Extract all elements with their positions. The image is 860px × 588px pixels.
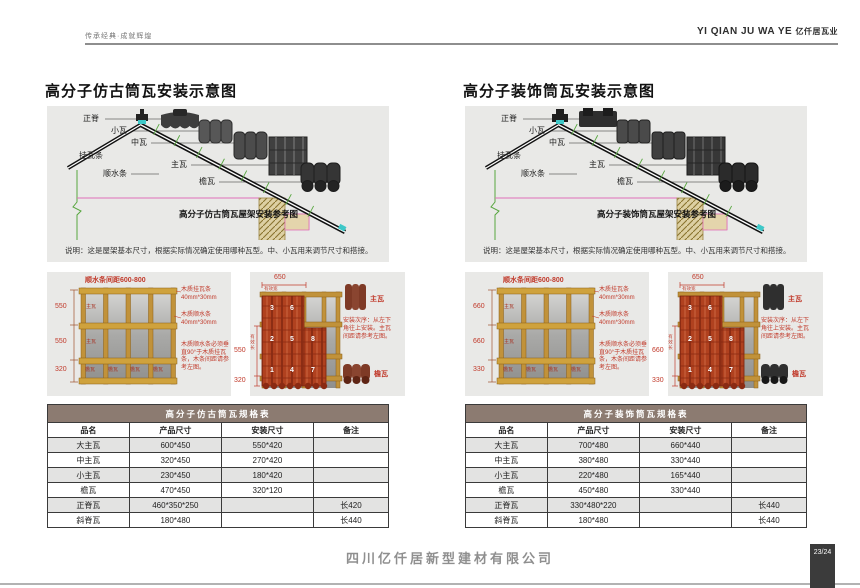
table-cell: 檐瓦: [466, 483, 548, 498]
table-row: 檐瓦450*480330*440: [466, 483, 807, 498]
table-cell: 220*480: [547, 468, 639, 483]
roof-note: 说明：这是屋架基本尺寸，根据实际情况确定使用哪种瓦型。中、小瓦用来调节尺寸和搭接…: [65, 245, 385, 256]
table-title: 高分子装饰筒瓦规格表: [466, 405, 807, 423]
table-cell: 330*440: [639, 483, 731, 498]
spec-table: 高分子装饰筒瓦规格表 品名 产品尺寸 安装尺寸 备注 大主瓦700*480660…: [465, 404, 807, 528]
spec-table: 高分子仿古筒瓦规格表 品名 产品尺寸 安装尺寸 备注 大主瓦600*450550…: [47, 404, 389, 528]
table-cell: 320*450: [129, 453, 221, 468]
table-row: 中主瓦380*480330*440: [466, 453, 807, 468]
table-cell: 大主瓦: [466, 438, 548, 453]
tile-number: 5: [290, 336, 294, 343]
dim-550-mid: 550: [55, 338, 67, 345]
eave-tile-thumb: [761, 364, 788, 384]
label-small-tile: 小瓦: [529, 127, 545, 135]
annotation-water-batten: 木质顺水条40mm*30mm: [181, 312, 229, 327]
table-row: 斜脊瓦180*480长440: [466, 513, 807, 528]
label-ridge: 正脊: [501, 115, 517, 123]
section-title: 高分子仿古筒瓦安装示意图: [45, 80, 237, 101]
right-section: 高分子装饰筒瓦安装示意图: [463, 80, 821, 532]
table-cell: [731, 468, 806, 483]
annotation-water-batten: 木质顺水条40mm*30mm: [599, 312, 647, 327]
table-cell: 330*480*220: [547, 498, 639, 513]
eave-tile-thumb: [343, 364, 370, 384]
cell-main-tile: 主瓦: [504, 340, 514, 345]
cell-eave-tile: 檐瓦: [526, 368, 536, 373]
table-cell: 檐瓦: [48, 483, 130, 498]
label-mid-tile: 中瓦: [131, 139, 147, 147]
roof-caption: 高分子仿古筒瓦屋架安装参考图: [179, 208, 298, 220]
col-header: 产品尺寸: [129, 423, 221, 438]
table-cell: 380*480: [547, 453, 639, 468]
dim-660-mid: 660: [473, 338, 485, 345]
label-mid-tile: 中瓦: [549, 139, 565, 147]
tile-number: 1: [270, 367, 274, 374]
tile-number: 6: [708, 305, 712, 312]
label-small-tile: 小瓦: [111, 127, 127, 135]
company-name: 四川亿仟居新型建材有限公司: [310, 548, 590, 567]
annotation-hang-batten: 木质挂瓦条40mm*30mm: [599, 287, 647, 302]
page-number: 23/24: [810, 544, 835, 588]
tile-number: 7: [311, 367, 315, 374]
table-cell: [313, 468, 388, 483]
table-cell: 长420: [313, 498, 388, 513]
cell-main-tile: 主瓦: [86, 305, 96, 310]
section-title: 高分子装饰筒瓦安装示意图: [463, 80, 655, 101]
dim-height: 550: [234, 347, 246, 354]
table-cell: 330*440: [639, 453, 731, 468]
table-cell: 斜脊瓦: [48, 513, 130, 528]
table-title: 高分子仿古筒瓦规格表: [48, 405, 389, 423]
annotation-hang-batten: 木质挂瓦条40mm*30mm: [181, 287, 229, 302]
table-cell: 660*440: [639, 438, 731, 453]
dim-eave: 330: [652, 377, 664, 384]
label-effective-length: 有效长: [668, 334, 673, 351]
label-effective-width: 有效宽: [264, 287, 278, 292]
table-cell: [639, 498, 731, 513]
label-main-tile: 主瓦: [171, 161, 187, 169]
table-cell: 550*420: [221, 438, 313, 453]
tile-number: 7: [729, 367, 733, 374]
annotation-rule: 木质顺水条必须垂直90°于木质挂瓦条，木条间距请参考左图。: [181, 342, 229, 372]
table-row: 正脊瓦330*480*220长440: [466, 498, 807, 513]
table-cell: 小主瓦: [466, 468, 548, 483]
cell-eave-tile: 檐瓦: [85, 368, 95, 373]
header-brand: YI QIAN JU WA YE 亿仟居瓦业: [697, 26, 838, 37]
table-cell: [221, 498, 313, 513]
cell-main-tile: 主瓦: [86, 340, 96, 345]
table-cell: [639, 513, 731, 528]
tile-number: 3: [270, 305, 274, 312]
table-cell: [313, 453, 388, 468]
col-header: 产品尺寸: [547, 423, 639, 438]
dim-550-top: 550: [55, 303, 67, 310]
header-slogan: 传承经典·成就辉煌: [85, 31, 152, 41]
label-water-batten: 顺水条: [103, 170, 127, 178]
label-water-batten: 顺水条: [521, 170, 545, 178]
col-header: 安装尺寸: [221, 423, 313, 438]
col-header: 安装尺寸: [639, 423, 731, 438]
table-row: 斜脊瓦180*480长440: [48, 513, 389, 528]
label-hang-batten: 挂瓦条: [79, 152, 103, 160]
table-cell: 正脊瓦: [48, 498, 130, 513]
table-cell: 180*420: [221, 468, 313, 483]
roof-install-panel: 正脊 小瓦 中瓦 主瓦 挂瓦条 顺水条 檐瓦 高分子仿古筒瓦屋架安装参考图 说明…: [47, 106, 389, 262]
install-order-note: 安装次序：从左下角往上安装。主瓦间距请参考左图。: [761, 318, 811, 341]
col-header: 备注: [731, 423, 806, 438]
table-cell: [731, 453, 806, 468]
dimension-lines: [70, 290, 78, 382]
batten-grid-panel: 顺水条间距600-800: [465, 272, 649, 396]
table-cell: [731, 483, 806, 498]
dim-eave: 320: [234, 377, 246, 384]
cell-eave-tile: 檐瓦: [548, 368, 558, 373]
left-section: 高分子仿古筒瓦安装示意图: [45, 80, 403, 532]
table-cell: 230*450: [129, 468, 221, 483]
dim-650: 650: [274, 274, 286, 281]
tile-number: 2: [688, 336, 692, 343]
dim-320-bot: 320: [55, 366, 67, 373]
dim-650: 650: [692, 274, 704, 281]
table-row: 小主瓦220*480165*440: [466, 468, 807, 483]
cell-eave-tile: 檐瓦: [503, 368, 513, 373]
table-cell: [313, 483, 388, 498]
table-cell: 正脊瓦: [466, 498, 548, 513]
tile-laying-panel: 650 有效宽 660 330 有效长 3 6 2 5 8 1 4 7 主瓦 安…: [668, 272, 823, 396]
cell-eave-tile: 檐瓦: [108, 368, 118, 373]
label-main-tile: 主瓦: [589, 161, 605, 169]
label-main-tile: 主瓦: [788, 294, 802, 304]
tile-laying-panel: 650 有效宽 550 320 有效长 3 6 2 5 8 1 4 7 主瓦 安…: [250, 272, 405, 396]
table-cell: 470*450: [129, 483, 221, 498]
footer-rule: [0, 583, 860, 585]
cell-eave-tile: 檐瓦: [571, 368, 581, 373]
table-cell: [221, 513, 313, 528]
tile-number: 8: [311, 336, 315, 343]
label-eave-tile: 檐瓦: [199, 178, 215, 186]
label-eave-tile: 檐瓦: [374, 369, 388, 379]
tile-number: 4: [708, 367, 712, 374]
table-cell: 180*480: [129, 513, 221, 528]
tile-number: 2: [270, 336, 274, 343]
label-hang-batten: 挂瓦条: [497, 152, 521, 160]
ridge-marker: [556, 120, 564, 124]
label-effective-length: 有效长: [250, 334, 255, 351]
table-cell: 600*450: [129, 438, 221, 453]
table-cell: 长440: [731, 513, 806, 528]
roof-install-panel: 正脊 小瓦 中瓦 主瓦 挂瓦条 顺水条 檐瓦 高分子装饰筒瓦屋架安装参考图 说明…: [465, 106, 807, 262]
table-row: 中主瓦320*450270*420: [48, 453, 389, 468]
label-effective-width: 有效宽: [682, 287, 696, 292]
dim-330-bot: 330: [473, 366, 485, 373]
cell-eave-tile: 檐瓦: [153, 368, 163, 373]
table-cell: 700*480: [547, 438, 639, 453]
cell-eave-tile: 檐瓦: [130, 368, 140, 373]
dimension-lines: [488, 290, 496, 382]
table-row: 大主瓦700*480660*440: [466, 438, 807, 453]
ridge-marker: [138, 120, 146, 124]
table-cell: 大主瓦: [48, 438, 130, 453]
annotation-rule: 木质顺水条必须垂直90°于木质挂瓦条，木条间距请参考左图。: [599, 342, 647, 372]
main-tile-thumb: [763, 284, 784, 310]
table-cell: 460*350*250: [129, 498, 221, 513]
header-rule: [85, 43, 838, 45]
table-cell: 270*420: [221, 453, 313, 468]
col-header: 备注: [313, 423, 388, 438]
table-cell: 450*480: [547, 483, 639, 498]
table-cell: 长440: [731, 498, 806, 513]
main-tile-thumb: [345, 284, 366, 310]
tile-number: 8: [729, 336, 733, 343]
install-order-note: 安装次序：从左下角往上安装。主瓦间距请参考左图。: [343, 318, 393, 341]
table-cell: 中主瓦: [466, 453, 548, 468]
table-cell: 斜脊瓦: [466, 513, 548, 528]
table-cell: 中主瓦: [48, 453, 130, 468]
table-cell: 320*120: [221, 483, 313, 498]
label-eave-tile: 檐瓦: [792, 369, 806, 379]
table-cell: [731, 438, 806, 453]
dim-660-top: 660: [473, 303, 485, 310]
cell-main-tile: 主瓦: [504, 305, 514, 310]
table-row: 小主瓦230*450180*420: [48, 468, 389, 483]
col-header: 品名: [466, 423, 548, 438]
roof-caption: 高分子装饰筒瓦屋架安装参考图: [597, 208, 716, 220]
dim-height: 660: [652, 347, 664, 354]
tile-number: 3: [688, 305, 692, 312]
tile-number: 6: [290, 305, 294, 312]
table-cell: 长440: [313, 513, 388, 528]
roof-note: 说明：这是屋架基本尺寸，根据实际情况确定使用哪种瓦型。中、小瓦用来调节尺寸和搭接…: [483, 245, 803, 256]
table-cell: 165*440: [639, 468, 731, 483]
table-cell: [313, 438, 388, 453]
table-row: 大主瓦600*450550*420: [48, 438, 389, 453]
tile-number: 4: [290, 367, 294, 374]
col-header: 品名: [48, 423, 130, 438]
batten-grid-panel: 顺水条间距600-800: [47, 272, 231, 396]
table-row: 檐瓦470*450320*120: [48, 483, 389, 498]
label-main-tile: 主瓦: [370, 294, 384, 304]
label-ridge: 正脊: [83, 115, 99, 123]
table-cell: 小主瓦: [48, 468, 130, 483]
tile-number: 1: [688, 367, 692, 374]
table-row: 正脊瓦460*350*250长420: [48, 498, 389, 513]
brand-cn: 亿仟居瓦业: [796, 27, 839, 36]
table-cell: 180*480: [547, 513, 639, 528]
tile-number: 5: [708, 336, 712, 343]
brand-en: YI QIAN JU WA YE: [697, 26, 792, 37]
label-eave-tile: 檐瓦: [617, 178, 633, 186]
